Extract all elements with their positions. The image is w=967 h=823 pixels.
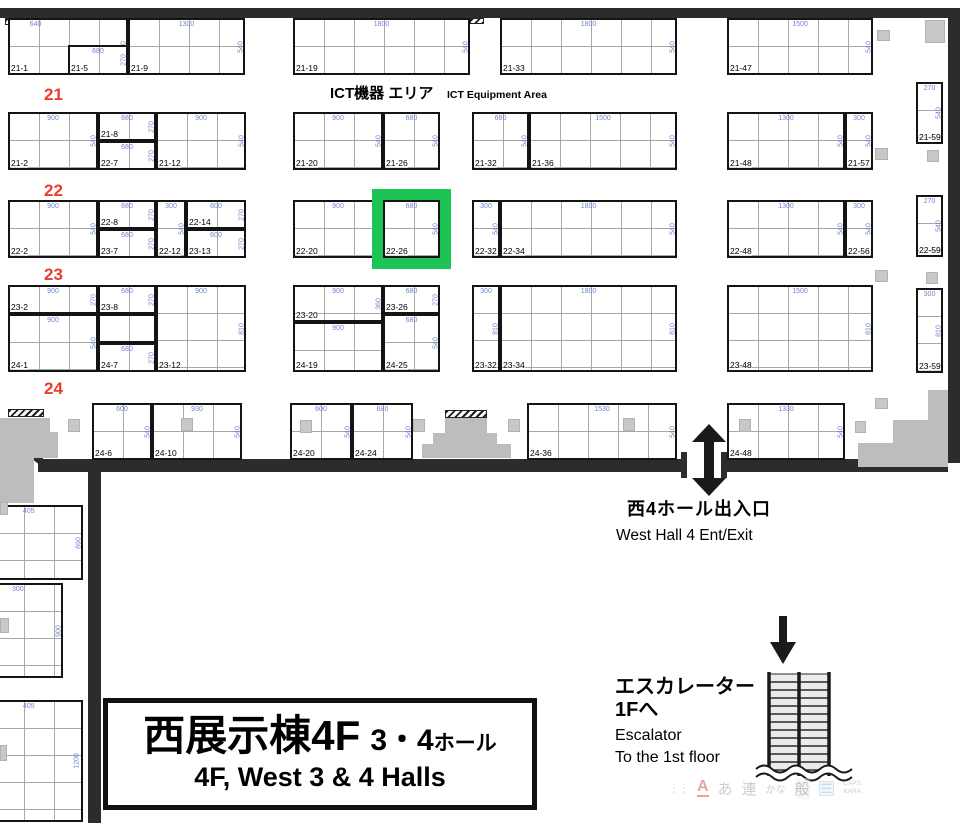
booth-label: 24-10 (155, 449, 177, 458)
booth-dimension-right: 810 (670, 323, 677, 335)
booth-label: 21-33 (503, 64, 525, 73)
booth-label: 22-20 (296, 247, 318, 256)
booth-dimension-right: 540 (670, 41, 677, 53)
ime-renbunsetsu-button[interactable]: 連 (742, 778, 757, 799)
booth-label: 24-24 (355, 449, 377, 458)
booth-label: 23-34 (503, 361, 525, 370)
booth-dimension-top: 1800 (581, 288, 597, 295)
booth-label: 23-7 (101, 247, 118, 256)
booth-dimension-top: 930 (191, 406, 203, 413)
escalator-down-arrow-icon (770, 616, 796, 666)
stairs-center-step2 (433, 433, 497, 444)
booth-24-25[interactable]: 68054024-25 (383, 314, 440, 372)
booth-24-1[interactable]: 90054024-1 (8, 314, 98, 372)
booth-dimension-top: 680 (377, 406, 389, 413)
booth-dimension-right: 540 (838, 223, 845, 235)
booth-dimension-top: 680 (406, 317, 418, 324)
ime-kana-input-button[interactable]: かな (766, 781, 786, 796)
booth-dimension-right: 540 (936, 220, 943, 232)
escalator-icon (766, 672, 832, 784)
booth-dimension-right: 540 (838, 426, 845, 438)
pillar (855, 421, 866, 433)
booth-32[interactable]: 405690-32 (0, 505, 83, 580)
booth-label: 22-32 (475, 247, 497, 256)
pillar (413, 419, 425, 432)
booth-label: 24-36 (530, 449, 552, 458)
booth-22-48[interactable]: 130054022-48 (727, 200, 845, 258)
booth-22-8[interactable]: 68027022-8 (98, 200, 156, 229)
booth-dimension-top: 300 (480, 203, 492, 210)
booth-dimension-top: 680 (121, 203, 133, 210)
stairs-center-step1 (445, 418, 487, 433)
booth-dimension-right: 540 (238, 41, 245, 53)
booth-label: 24-7 (101, 361, 118, 370)
booth-label: 24-48 (730, 449, 752, 458)
booth-dimension-top: 1300 (778, 115, 794, 122)
pillar (739, 419, 751, 432)
entrance-label-en: West Hall 4 Ent/Exit (616, 527, 753, 545)
booth-21-36[interactable]: 150054021-36 (529, 112, 677, 170)
booth-label: 24-19 (296, 361, 318, 370)
booth-label: 24-25 (386, 361, 408, 370)
booth-dimension-top: 680 (121, 115, 133, 122)
booth-dimension-right: 540 (239, 135, 246, 147)
booth-unlabeled[interactable]: 4051200 (0, 700, 83, 822)
booth-label: 23-2 (11, 303, 28, 312)
booth-dimension-top: 600 (116, 406, 128, 413)
booth-36[interactable]: 300900-36 (0, 583, 63, 678)
wall-top (0, 8, 960, 18)
booth-label: 21-12 (159, 159, 181, 168)
booth-dimension-top: 680 (121, 346, 133, 353)
ime-mode-hiragana-button[interactable]: あ (718, 778, 733, 799)
booth-dimension-right: 270 (149, 238, 156, 250)
ict-area-label-jp: ICT機器 エリア (330, 86, 433, 103)
booth-dimension-top: 600 (210, 232, 222, 239)
booth-dimension-top: 680 (121, 288, 133, 295)
pillar (0, 618, 9, 633)
booth-dimension-top: 680 (406, 203, 418, 210)
booth-dimension-top: 680 (121, 144, 133, 151)
booth-dimension-top: 680 (121, 232, 133, 239)
booth-dimension-top: 600 (315, 406, 327, 413)
booth-dimension-top: 300 (480, 288, 492, 295)
booth-22-2[interactable]: 90054022-2 (8, 200, 98, 258)
entrance-gap-cap-left (681, 452, 687, 478)
booth-label: 23-32 (475, 361, 497, 370)
booth-dimension-right: 540 (91, 337, 98, 349)
booth-dimension-right: 540 (376, 135, 383, 147)
booth-label: 21-36 (532, 159, 554, 168)
pillar (0, 745, 7, 761)
booth-dimension-top: 1500 (792, 288, 808, 295)
ime-caps-kana-indicator: CAPSKANA (843, 780, 861, 797)
booth-dimension-right: 690 (76, 537, 83, 549)
booth-dimension-top: 405 (23, 508, 35, 515)
booth-dimension-top: 680 (92, 48, 104, 55)
aisle-row-label-22: 22 (44, 182, 63, 199)
booth-23-7[interactable]: 68027023-7 (98, 229, 156, 258)
booth-dimension-top: 405 (23, 703, 35, 710)
booth-label: 23-8 (101, 303, 118, 312)
booth-dimension-right: 540 (463, 41, 470, 53)
stairs-right-step3 (858, 443, 948, 467)
booth-dimension-right: 540 (433, 337, 440, 349)
booth-label: 22-2 (11, 247, 28, 256)
pillar (300, 420, 312, 433)
booth-label: 23-13 (189, 247, 211, 256)
booth-23-59[interactable]: 30081023-59 (916, 288, 943, 373)
booth-label: 23-59 (919, 362, 941, 371)
booth-21-48[interactable]: 130054021-48 (727, 112, 845, 170)
booth-dimension-right: 270 (149, 121, 156, 133)
booth-dimension-top: 900 (47, 288, 59, 295)
booth-label: 21-5 (71, 64, 88, 73)
pillar (875, 270, 888, 282)
booth-21-57[interactable]: 30054021-57 (845, 112, 873, 170)
booth-label: 21-20 (296, 159, 318, 168)
booth-dimension-top: 300 (165, 203, 177, 210)
booth-23-20[interactable]: 90036023-20 (293, 285, 383, 322)
stairs-left-step3 (0, 455, 34, 503)
hall-title-jp-sub: 3・4ホール (370, 726, 496, 756)
booth-dimension-right: 540 (376, 223, 383, 235)
booth-dimension-right: 540 (433, 135, 440, 147)
booth-label: 23-20 (296, 311, 318, 320)
booth-dimension-right: 540 (670, 426, 677, 438)
booth-label: 21-2 (11, 159, 28, 168)
booth-dimension-right: 270 (149, 209, 156, 221)
booth-dimension-right: 540 (522, 135, 529, 147)
aisle-row-label-23: 23 (44, 266, 63, 283)
pillar (875, 398, 888, 409)
booth-label: 22-7 (101, 159, 118, 168)
booth-dimension-top: 900 (195, 288, 207, 295)
escalator-label-jp-line1: エスカレーター (615, 676, 755, 698)
booth-dimension-right: 540 (91, 135, 98, 147)
booth-label: 23-26 (386, 303, 408, 312)
booth-label: 24-20 (293, 449, 315, 458)
booth-24-19[interactable]: 90024-19 (293, 322, 383, 372)
booth-dimension-top: 1530 (594, 406, 610, 413)
booth-dimension-right: 540 (838, 135, 845, 147)
booth-dimension-right: 540 (670, 223, 677, 235)
hall-title-line1: 西展示棟4F 3・4ホール (143, 715, 496, 757)
booth-label: 21-26 (386, 159, 408, 168)
booth-dimension-top: 300 (12, 586, 24, 593)
pillar (877, 30, 890, 41)
aisle-row-label-24: 24 (44, 380, 63, 397)
booth-dimension-right: 540 (433, 223, 440, 235)
booth-label: 23-12 (159, 361, 181, 370)
booth-dimension-top: 1800 (374, 21, 390, 28)
booth-dimension-top: 1800 (581, 203, 597, 210)
booth-dimension-right: 540 (866, 135, 873, 147)
booth-21-12[interactable]: 90054021-12 (156, 112, 246, 170)
booth-dimension-top: 680 (406, 288, 418, 295)
booth-23-2[interactable]: 90027023-2 (8, 285, 98, 314)
booth-dimension-right: 270 (239, 209, 246, 221)
booth-dimension-right: 540 (235, 426, 242, 438)
booth-label: 21-57 (848, 159, 870, 168)
booth-dimension-top: 300 (853, 115, 865, 122)
booth-label: 21-1 (11, 64, 28, 73)
booth-21-26[interactable]: 68054021-26 (383, 112, 440, 170)
booth-21-47[interactable]: 150054021-47 (727, 18, 873, 75)
ime-general-mode-button[interactable]: 般 (795, 778, 810, 799)
booth-label: 22-59 (919, 246, 941, 255)
booth-dimension-top: 1330 (778, 406, 794, 413)
booth-22-59[interactable]: 27054022-59 (916, 195, 943, 257)
booth-21-5[interactable]: 68027021-5 (68, 45, 128, 75)
booth-dimension-top: 900 (195, 115, 207, 122)
escalator-label-en-line2: To the 1st floor (615, 749, 720, 767)
pillar (181, 418, 193, 431)
booth-dimension-right: 270 (239, 238, 246, 250)
pillar (0, 502, 8, 515)
booth-label: 21-32 (475, 159, 497, 168)
booth-dimension-right: 270 (121, 54, 128, 66)
booth-24-6[interactable]: 60054024-6 (92, 403, 152, 460)
booth-dimension-top: 900 (332, 325, 344, 332)
ime-logo-icon[interactable]: A (697, 779, 709, 797)
pillar (623, 418, 635, 431)
booth-dimension-top: 900 (47, 317, 59, 324)
booth-22-7[interactable]: 68027022-7 (98, 141, 156, 170)
booth-21-2[interactable]: 90054021-2 (8, 112, 98, 170)
booth-22-14[interactable]: 60027022-14 (186, 200, 246, 229)
booth-dimension-right: 270 (149, 294, 156, 306)
hall-title-en: 4F, West 3 & 4 Halls (194, 761, 446, 793)
booth-22-34[interactable]: 180054022-34 (500, 200, 677, 258)
ime-toolbar-watermark: ⋮⋮ A あ 連 かな 般 ☰ CAPSKANA (668, 774, 861, 802)
booth-dimension-top: 1500 (792, 21, 808, 28)
booth-dimension-top: 900 (332, 115, 344, 122)
booth-dimension-right: 270 (433, 294, 440, 306)
booth-label: 24-6 (95, 449, 112, 458)
booth-label: 22-56 (848, 247, 870, 256)
booth-21-33[interactable]: 180054021-33 (500, 18, 677, 75)
hatch-strip-stairs-left (8, 409, 44, 417)
hatch-strip-top-mid-b (470, 18, 484, 24)
booth-dimension-top: 900 (47, 115, 59, 122)
hall-title-box: 西展示棟4F 3・4ホール 4F, West 3 & 4 Halls (103, 698, 537, 810)
booth-22-12[interactable]: 30054022-12 (156, 200, 186, 258)
booth-dimension-top: 600 (210, 203, 222, 210)
booth-dimension-top: 1300 (778, 203, 794, 210)
booth-dimension-right: 540 (406, 426, 413, 438)
booth-21-32[interactable]: 68054021-32 (472, 112, 529, 170)
booth-dimension-right: 540 (670, 135, 677, 147)
booth-dimension-top: 300 (853, 203, 865, 210)
booth-dimension-top: 900 (332, 288, 344, 295)
booth-dimension-right: 810 (239, 323, 246, 335)
booth-dimension-right: 270 (91, 294, 98, 306)
booth-21-20[interactable]: 90054021-20 (293, 112, 383, 170)
booth-23-13[interactable]: 60027023-13 (186, 229, 246, 258)
booth-24-24[interactable]: 68054024-24 (352, 403, 413, 460)
booth-dimension-top: 680 (406, 115, 418, 122)
entrance-label-jp: 西4ホール出入口 (627, 500, 771, 520)
booth-label: 21-9 (131, 64, 148, 73)
booth-dimension-right: 900 (56, 625, 63, 637)
booth-label: 21-19 (296, 64, 318, 73)
booth-23-32[interactable]: 30081023-32 (472, 285, 500, 372)
wall-right (948, 8, 960, 463)
booth-label: 22-12 (159, 247, 181, 256)
booth-label: 22-8 (101, 218, 118, 227)
ict-area-label-en: ICT Equipment Area (447, 90, 547, 102)
booth-dimension-right: 360 (376, 298, 383, 310)
booth-label: 21-59 (919, 133, 941, 142)
pillar (926, 272, 938, 284)
booth-22-20[interactable]: 90054022-20 (293, 200, 383, 258)
booth-dimension-right: 270 (149, 150, 156, 162)
booth-dimension-right: 810 (866, 323, 873, 335)
booth-dimension-top: 1500 (595, 115, 611, 122)
booth-dimension-right: 270 (149, 352, 156, 364)
booth-dimension-right: 540 (866, 41, 873, 53)
stairs-center-step3 (422, 444, 511, 458)
booth-21-19[interactable]: 180054021-19 (293, 18, 470, 75)
booth-dimension-right: 810 (493, 323, 500, 335)
booth-24-36[interactable]: 153054024-36 (527, 403, 677, 460)
booth-label: 24-1 (11, 361, 28, 370)
pillar (925, 20, 945, 43)
booth-dimension-top: 270 (924, 198, 936, 205)
booth-22-32[interactable]: 30054022-32 (472, 200, 500, 258)
booth-23-26[interactable]: 68027023-26 (383, 285, 440, 314)
booth-dimension-right: 540 (936, 107, 943, 119)
booth-dimension-top: 1300 (179, 21, 195, 28)
booth-label: 22-26 (386, 247, 408, 256)
booth-dimension-right: 540 (91, 223, 98, 235)
ime-menu-icon[interactable]: ☰ (819, 781, 835, 796)
booth-dimension-top: 640 (30, 21, 42, 28)
booth-21-8[interactable]: 68027021-8 (98, 112, 156, 141)
booth-label: 22-48 (730, 247, 752, 256)
booth-dimension-top: 900 (332, 203, 344, 210)
booth-dimension-right: 810 (936, 325, 943, 337)
booth-21-59[interactable]: 27054021-59 (916, 82, 943, 144)
booth-dimension-right: 540 (493, 223, 500, 235)
booth-dimension-top: 270 (924, 85, 936, 92)
aisle-row-label-21: 21 (44, 86, 63, 103)
booth-23-8[interactable]: 68027023-8 (98, 285, 156, 314)
booth-21-9[interactable]: 130054021-9 (128, 18, 245, 75)
hatch-strip-stairs-center (445, 410, 487, 418)
wall-bottom-left-segment (38, 459, 683, 472)
wall-left-vertical (88, 462, 101, 823)
booth-dimension-top: 680 (495, 115, 507, 122)
booth-dimension-right: 540 (179, 223, 186, 235)
booth-label: 21-47 (730, 64, 752, 73)
floor-plan: 64054021-168027021-5130054021-9180054021… (0, 0, 967, 823)
booth-label: 22-14 (189, 218, 211, 227)
booth-22-56[interactable]: 30054022-56 (845, 200, 873, 258)
pillar (875, 148, 888, 160)
stairs-left-step2 (40, 432, 58, 458)
booth-dimension-right: 540 (866, 223, 873, 235)
booth-dimension-top: 300 (924, 291, 936, 298)
booth-dimension-top: 900 (47, 203, 59, 210)
booth-24-7[interactable]: 68027024-7 (98, 343, 156, 372)
booth-23-12[interactable]: 90081023-12 (156, 285, 246, 372)
booth-dimension-right: 540 (345, 426, 352, 438)
booth-dimension-top: 1800 (581, 21, 597, 28)
pillar (927, 150, 939, 162)
pillar (508, 419, 520, 432)
ime-drag-handle[interactable]: ⋮⋮ (668, 781, 688, 795)
booth-label: 22-34 (503, 247, 525, 256)
booth-dimension-right: 540 (145, 426, 152, 438)
escalator-label-en-line1: Escalator (615, 727, 682, 745)
hall-title-jp: 西展示棟4F (143, 715, 360, 757)
booth-unlabeled[interactable] (98, 314, 156, 343)
pillar (68, 419, 80, 432)
booth-dimension-right: 1200 (74, 753, 81, 769)
booth-label: 23-48 (730, 361, 752, 370)
entrance-double-arrow-icon (692, 424, 726, 496)
booth-label: 21-8 (101, 130, 118, 139)
booth-22-26[interactable]: 68054022-26 (383, 200, 440, 258)
booth-24-10[interactable]: 93054024-10 (152, 403, 242, 460)
booth-23-34[interactable]: 180081023-34 (500, 285, 677, 372)
booth-23-48[interactable]: 150081023-48 (727, 285, 873, 372)
escalator-label-jp-line2: 1Fへ (615, 699, 658, 721)
booth-label: 21-48 (730, 159, 752, 168)
